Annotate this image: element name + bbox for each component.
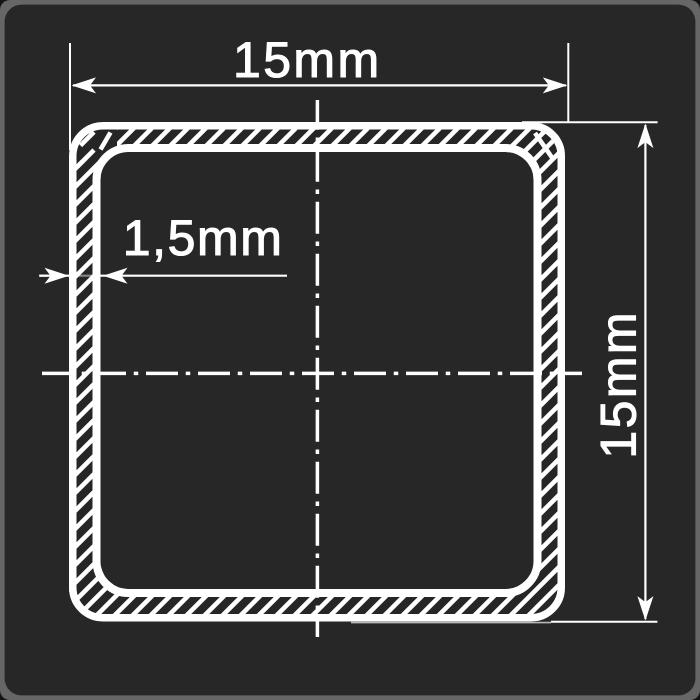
svg-text:15mm: 15mm bbox=[233, 32, 382, 88]
svg-text:1,5mm: 1,5mm bbox=[123, 210, 284, 266]
svg-text:15mm: 15mm bbox=[590, 310, 646, 459]
